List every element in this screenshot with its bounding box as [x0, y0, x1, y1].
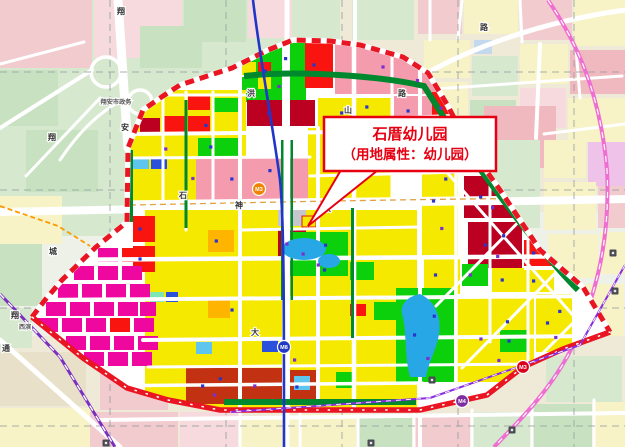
facility-dot	[432, 199, 435, 202]
parcel	[336, 372, 354, 388]
parcel	[58, 284, 78, 298]
parcel	[134, 318, 154, 332]
pond-water	[318, 254, 340, 268]
facility-dot	[416, 79, 419, 82]
parcel	[46, 302, 66, 316]
parcel	[90, 336, 110, 350]
facility-dot	[434, 273, 437, 276]
facility-dot	[340, 111, 343, 114]
pastel-parcel	[352, 0, 414, 40]
parcel	[262, 340, 278, 352]
parcel	[196, 342, 212, 354]
metro-station-label: M8	[280, 345, 288, 351]
road-name-label: 石	[178, 191, 187, 200]
parcel	[500, 330, 528, 352]
road-name-label: 翔	[116, 6, 125, 16]
parcel	[208, 300, 230, 318]
parcel	[188, 96, 210, 110]
facility-dot	[558, 310, 561, 313]
parcel	[133, 216, 155, 242]
facility-dot	[426, 357, 429, 360]
facility-dot	[277, 85, 280, 88]
road-name-label: 神	[235, 200, 243, 210]
parcel	[131, 158, 149, 169]
facility-dot	[213, 393, 216, 396]
facility-dot	[469, 273, 472, 276]
parcel	[198, 138, 238, 156]
parcel	[122, 266, 142, 280]
marker-badge-glyph	[370, 442, 372, 444]
facility-dot	[497, 359, 500, 362]
facility-dot	[201, 384, 204, 387]
pastel-parcel	[0, 244, 42, 306]
facility-dot	[312, 63, 315, 66]
pond-water	[282, 238, 326, 260]
pastel-parcel	[544, 140, 586, 178]
road-name-label: 大	[251, 327, 259, 337]
parcel	[305, 42, 333, 88]
pastel-parcel	[598, 186, 625, 228]
facility-dot	[268, 169, 271, 172]
callout-title: 石厝幼儿园	[371, 125, 447, 143]
pastel-parcel	[546, 356, 622, 402]
pastel-parcel	[0, 0, 92, 68]
facility-dot	[479, 337, 482, 340]
road-name-label: 路	[398, 88, 407, 98]
facility-dot	[230, 308, 233, 311]
pastel-parcel	[464, 0, 518, 34]
marker-badge-glyph	[105, 442, 107, 444]
facility-dot	[444, 177, 447, 180]
parcel	[162, 116, 186, 132]
road-name-label: 翔	[47, 132, 56, 142]
marker-badge-glyph	[431, 379, 433, 381]
facility-dot	[439, 106, 442, 109]
facility-dot	[138, 227, 141, 230]
road-name-label: 路	[480, 22, 489, 32]
marker-badge-glyph	[612, 252, 614, 254]
facility-dot	[381, 65, 384, 68]
facility-dot	[293, 358, 296, 361]
green-median	[185, 100, 188, 228]
facility-dot	[413, 333, 416, 336]
facility-dot	[285, 242, 288, 245]
pastel-parcel	[414, 414, 470, 447]
metro-station-label: M3	[255, 187, 263, 193]
road-name-label: 翔安市政务	[100, 98, 133, 106]
parcel	[212, 98, 238, 112]
facility-dot	[554, 336, 557, 339]
pastel-parcel	[544, 182, 596, 230]
parcel	[62, 318, 82, 332]
parcel	[70, 302, 90, 316]
pastel-parcel	[520, 44, 568, 84]
road-name-label: 山	[344, 105, 352, 115]
map-canvas: M3M8M3M4 翔安翔翔安市政务路洪山路石神双城翔西滨通大 石厝幼儿园 （用地…	[0, 0, 625, 447]
facility-dot	[479, 195, 482, 198]
facility-dot	[284, 57, 287, 60]
facility-dot	[433, 315, 436, 318]
pastel-parcel	[0, 196, 62, 244]
parcel	[106, 284, 126, 298]
pastel-parcel	[140, 26, 202, 68]
pastel-parcel	[574, 0, 625, 46]
parcel	[208, 230, 234, 252]
parcel	[132, 352, 152, 366]
green-median	[351, 208, 354, 338]
facility-dot	[219, 377, 222, 380]
parcel	[108, 352, 128, 366]
facility-dot	[324, 244, 327, 247]
parcel	[151, 158, 167, 169]
parcel	[374, 302, 396, 320]
parcel	[133, 140, 157, 154]
facility-dot	[191, 177, 194, 180]
facility-dot	[365, 105, 368, 108]
facility-dot	[532, 279, 535, 282]
pastel-parcel	[418, 0, 462, 34]
facility-dot	[496, 255, 499, 258]
metro-station-label: M3	[519, 365, 527, 371]
pastel-parcel	[472, 56, 518, 96]
facility-dot	[302, 252, 305, 255]
facility-dot	[506, 320, 509, 323]
marker-badge-glyph	[511, 429, 513, 431]
marker-badge-glyph	[614, 290, 616, 292]
parcel	[140, 118, 160, 132]
parcel	[247, 100, 315, 126]
pastel-parcel	[358, 418, 412, 447]
road-name-label: 通	[2, 343, 10, 353]
facility-dot	[215, 239, 218, 242]
facility-dot	[484, 243, 487, 246]
green-median	[291, 140, 294, 300]
parcel	[86, 318, 106, 332]
callout-subtitle: （用地属性：幼儿园）	[343, 146, 478, 162]
facility-dot	[501, 278, 504, 281]
parcel	[492, 268, 524, 292]
facility-dot	[440, 227, 443, 230]
parcel	[118, 302, 138, 316]
facility-dot	[406, 109, 409, 112]
parcel	[130, 284, 150, 298]
parcel	[110, 318, 130, 332]
road-name-label: 洪	[247, 88, 255, 98]
metro-station-label: M4	[458, 399, 467, 405]
road-name-label: 安	[121, 122, 129, 132]
facility-dot	[491, 206, 494, 209]
road-name-label: 翔	[10, 310, 19, 320]
parcel	[94, 302, 114, 316]
facility-dot	[164, 147, 167, 150]
parcel	[98, 266, 118, 280]
parcel	[168, 96, 186, 110]
land-use-planning-map: M3M8M3M4 翔安翔翔安市政务路洪山路石神双城翔西滨通大 石厝幼儿园 （用地…	[0, 0, 625, 447]
facility-dot	[502, 234, 505, 237]
parcel	[140, 302, 156, 316]
pastel-parcel	[594, 402, 625, 447]
facility-dot	[253, 384, 256, 387]
road-name-label: 西滨	[19, 323, 32, 331]
facility-dot	[204, 124, 207, 127]
facility-dot	[507, 339, 510, 342]
facility-dot	[317, 263, 320, 266]
facility-dot	[295, 385, 298, 388]
facility-dot	[138, 257, 141, 260]
parcel	[82, 284, 102, 298]
facility-dot	[323, 268, 326, 271]
facility-dot	[546, 321, 549, 324]
facility-dot	[532, 251, 535, 254]
parcel	[114, 336, 134, 350]
facility-dot	[209, 145, 212, 148]
road-name-label: 城	[49, 246, 57, 256]
facility-dot	[230, 177, 233, 180]
